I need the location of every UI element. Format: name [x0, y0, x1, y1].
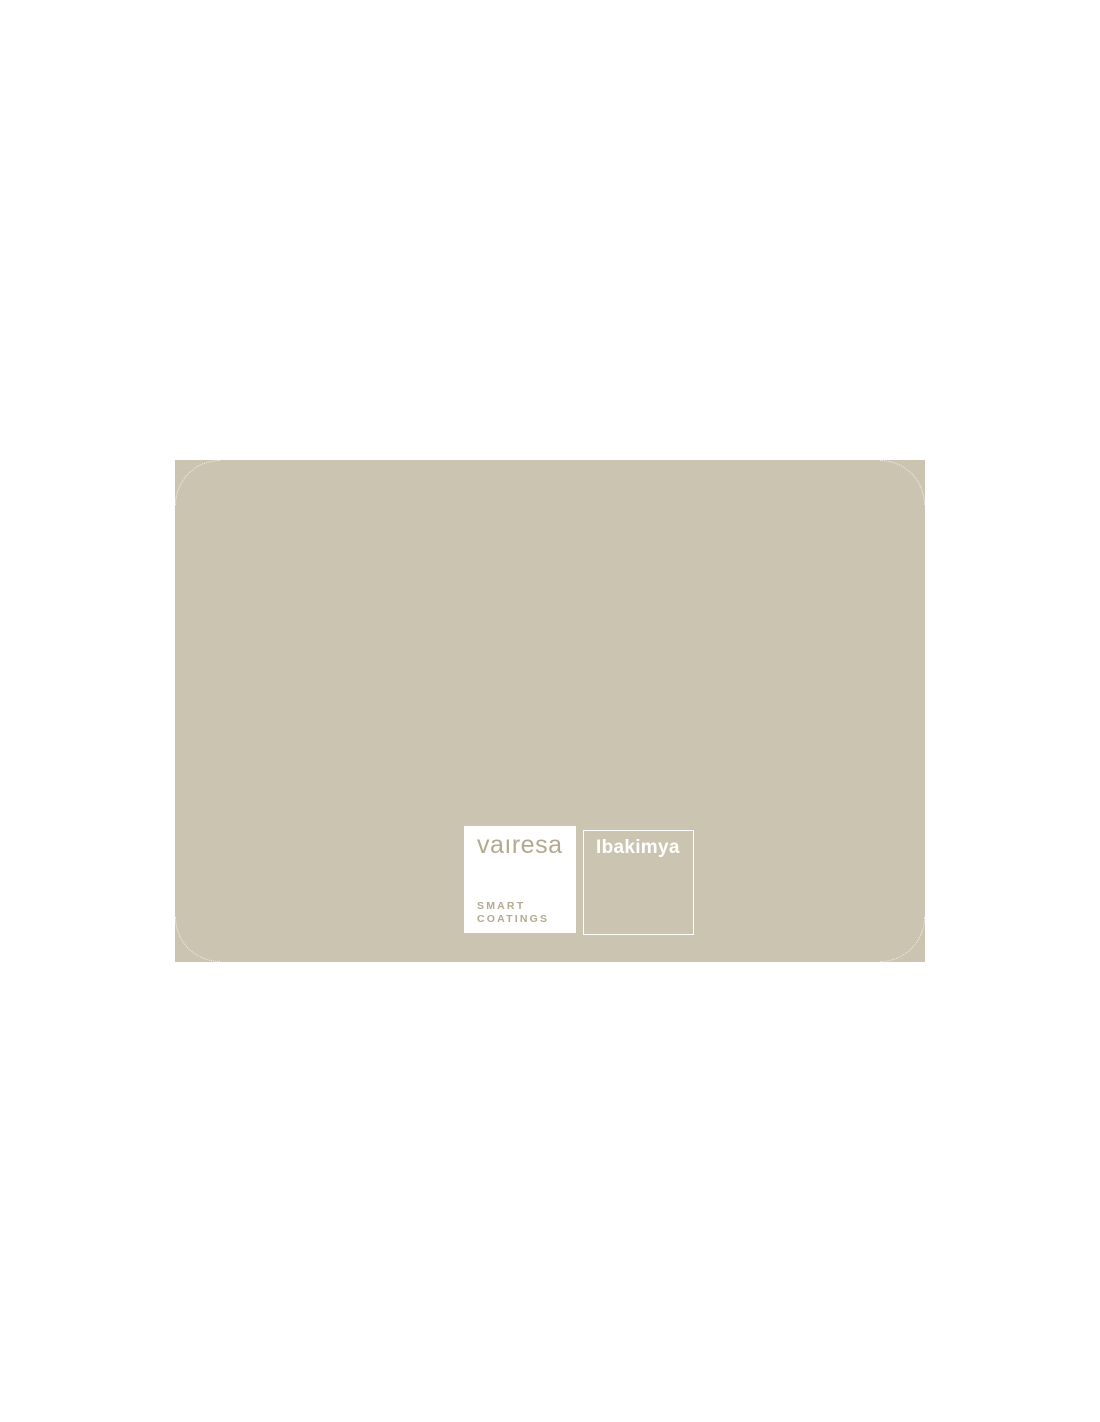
corner-arc-top-right	[880, 460, 925, 505]
color-swatch-card: vaıresa SMART COATINGS Ibakimya	[175, 460, 925, 962]
swatch-label-row: vaıresa SMART COATINGS Ibakimya	[464, 826, 694, 935]
corner-arc-top-left	[175, 460, 220, 505]
color-name-box: Ibakimya	[583, 830, 694, 935]
corner-arc-bottom-right	[880, 917, 925, 962]
brand-logo-box: vaıresa SMART COATINGS	[464, 826, 576, 933]
brand-tagline-line2: COATINGS	[477, 913, 576, 926]
brand-tagline: SMART COATINGS	[477, 900, 576, 926]
corner-arc-bottom-left	[175, 917, 220, 962]
brand-tagline-line1: SMART	[477, 900, 576, 913]
brand-logo-text: vaıresa	[477, 832, 576, 858]
color-name-label: Ibakimya	[596, 837, 687, 860]
